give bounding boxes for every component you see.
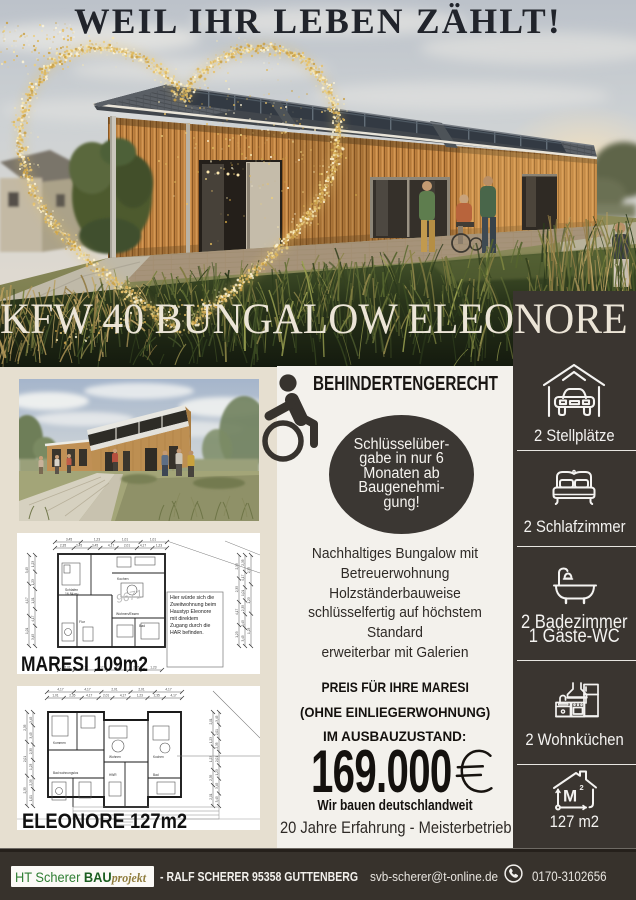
- svg-text:3,45: 3,45: [76, 544, 82, 548]
- svg-text:2,01: 2,01: [23, 756, 27, 762]
- svg-text:Zweitwohnung beim: Zweitwohnung beim: [170, 602, 216, 608]
- svg-text:1,23: 1,23: [156, 544, 162, 548]
- svg-text:Kommen: Kommen: [53, 741, 66, 745]
- svg-text:1,23: 1,23: [29, 764, 33, 770]
- svg-text:4,17: 4,17: [165, 688, 171, 692]
- svg-text:2,35: 2,35: [235, 563, 239, 569]
- svg-text:M: M: [563, 787, 577, 806]
- svg-text:1,23: 1,23: [247, 597, 251, 603]
- svg-text:2,35: 2,35: [23, 724, 27, 730]
- svg-text:2,01: 2,01: [209, 793, 213, 799]
- svg-text:3,45: 3,45: [241, 635, 245, 641]
- svg-text:2,35: 2,35: [247, 567, 251, 573]
- svg-text:1,23: 1,23: [137, 694, 143, 698]
- svg-text:1,23: 1,23: [94, 538, 100, 542]
- svg-text:4,17: 4,17: [140, 544, 146, 548]
- svg-text:1,01: 1,01: [241, 590, 245, 596]
- svg-text:3,45: 3,45: [31, 634, 35, 640]
- svg-text:1,23: 1,23: [209, 756, 213, 762]
- svg-text:Wohnen: Wohnen: [109, 755, 121, 759]
- svg-text:2,35: 2,35: [60, 544, 66, 548]
- svg-text:1,23: 1,23: [215, 769, 219, 775]
- svg-text:4,17: 4,17: [235, 609, 239, 615]
- svg-text:1,23: 1,23: [209, 737, 213, 743]
- svg-text:2,01: 2,01: [138, 688, 144, 692]
- svg-text:2,35: 2,35: [29, 748, 33, 754]
- svg-text:Kochen: Kochen: [117, 577, 129, 581]
- svg-text:HAR befinden.: HAR befinden.: [170, 630, 204, 636]
- svg-text:1,23: 1,23: [235, 631, 239, 637]
- svg-text:3,45: 3,45: [215, 783, 219, 789]
- svg-text:Wohnen/Essen: Wohnen/Essen: [116, 612, 139, 616]
- svg-text:3,45: 3,45: [66, 538, 72, 542]
- svg-text:3,45: 3,45: [215, 715, 219, 721]
- svg-text:2,01: 2,01: [124, 544, 130, 548]
- svg-text:mit direktem: mit direktem: [170, 616, 198, 622]
- svg-text:1,01: 1,01: [150, 538, 156, 542]
- svg-text:4,17: 4,17: [84, 688, 90, 692]
- svg-text:Flur: Flur: [79, 620, 86, 624]
- svg-text:2,35: 2,35: [69, 694, 75, 698]
- svg-text:3,45: 3,45: [215, 796, 219, 802]
- svg-text:16,84 m²: 16,84 m²: [65, 592, 79, 596]
- svg-text:Haustyp Eleonore: Haustyp Eleonore: [170, 609, 211, 615]
- svg-text:1,01: 1,01: [29, 795, 33, 801]
- svg-text:1,23: 1,23: [31, 561, 35, 567]
- svg-text:Bad wohnungslos: Bad wohnungslos: [53, 771, 79, 775]
- svg-text:4,17: 4,17: [120, 694, 126, 698]
- svg-text:2,35: 2,35: [209, 774, 213, 780]
- svg-text:2,35: 2,35: [215, 742, 219, 748]
- svg-text:3,45: 3,45: [92, 544, 98, 548]
- svg-text:4,17: 4,17: [57, 688, 63, 692]
- svg-text:3,45: 3,45: [241, 620, 245, 626]
- svg-text:2: 2: [580, 783, 584, 792]
- svg-text:2,35: 2,35: [29, 779, 33, 785]
- svg-text:2,01: 2,01: [103, 694, 109, 698]
- svg-text:2,01: 2,01: [209, 718, 213, 724]
- svg-text:1,01: 1,01: [25, 628, 29, 634]
- svg-text:2,01: 2,01: [215, 729, 219, 735]
- svg-text:4,17: 4,17: [241, 574, 245, 580]
- svg-text:1,01: 1,01: [31, 597, 35, 603]
- svg-text:2,01: 2,01: [215, 756, 219, 762]
- svg-text:Zugang durch die: Zugang durch die: [170, 623, 210, 629]
- svg-text:4,17: 4,17: [108, 544, 114, 548]
- svg-text:2,01: 2,01: [111, 688, 117, 692]
- svg-text:3,45: 3,45: [29, 732, 33, 738]
- svg-text:2,35: 2,35: [241, 605, 245, 611]
- svg-text:1,01: 1,01: [52, 694, 58, 698]
- svg-text:2,35: 2,35: [235, 586, 239, 592]
- svg-text:Bad: Bad: [139, 624, 145, 628]
- svg-text:4,17: 4,17: [31, 615, 35, 621]
- svg-text:HWR: HWR: [109, 773, 117, 777]
- svg-text:Bad: Bad: [153, 773, 159, 777]
- svg-text:2,35: 2,35: [241, 559, 245, 565]
- svg-text:Kochen: Kochen: [153, 755, 164, 759]
- svg-text:Hier würde sich die: Hier würde sich die: [170, 595, 214, 601]
- svg-text:4,17: 4,17: [86, 694, 92, 698]
- svg-text:2,35: 2,35: [154, 694, 160, 698]
- svg-text:4,17: 4,17: [25, 597, 29, 603]
- svg-text:3,45: 3,45: [29, 717, 33, 723]
- svg-text:1,23: 1,23: [31, 579, 35, 585]
- svg-text:1,01: 1,01: [122, 538, 128, 542]
- svg-text:2,35: 2,35: [23, 787, 27, 793]
- svg-text:4,17: 4,17: [170, 694, 176, 698]
- svg-text:1,23: 1,23: [247, 628, 251, 634]
- svg-text:3,45: 3,45: [25, 567, 29, 573]
